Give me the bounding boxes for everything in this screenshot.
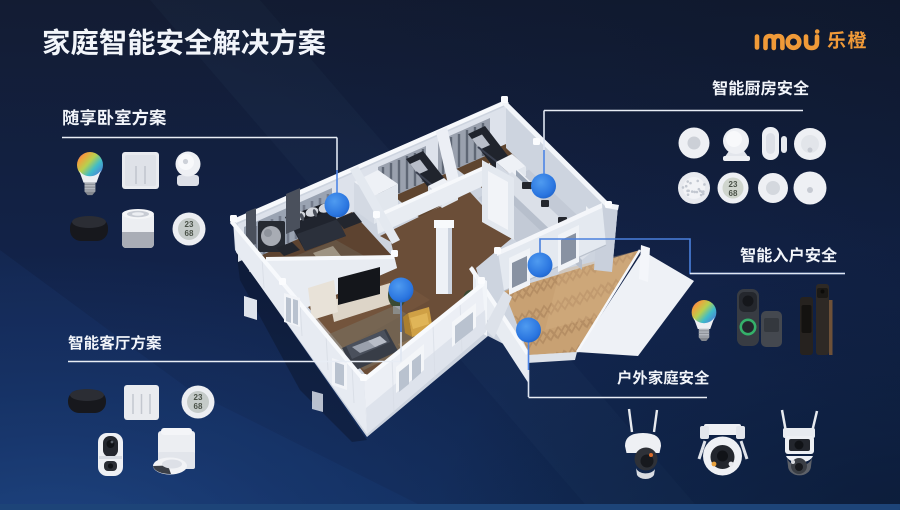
svg-text:23: 23 bbox=[185, 220, 194, 229]
svg-text:23: 23 bbox=[729, 180, 738, 189]
svg-text:68: 68 bbox=[194, 402, 203, 411]
svg-text:68: 68 bbox=[729, 189, 738, 198]
svg-text:23: 23 bbox=[194, 393, 203, 402]
svg-text:68: 68 bbox=[185, 229, 194, 238]
